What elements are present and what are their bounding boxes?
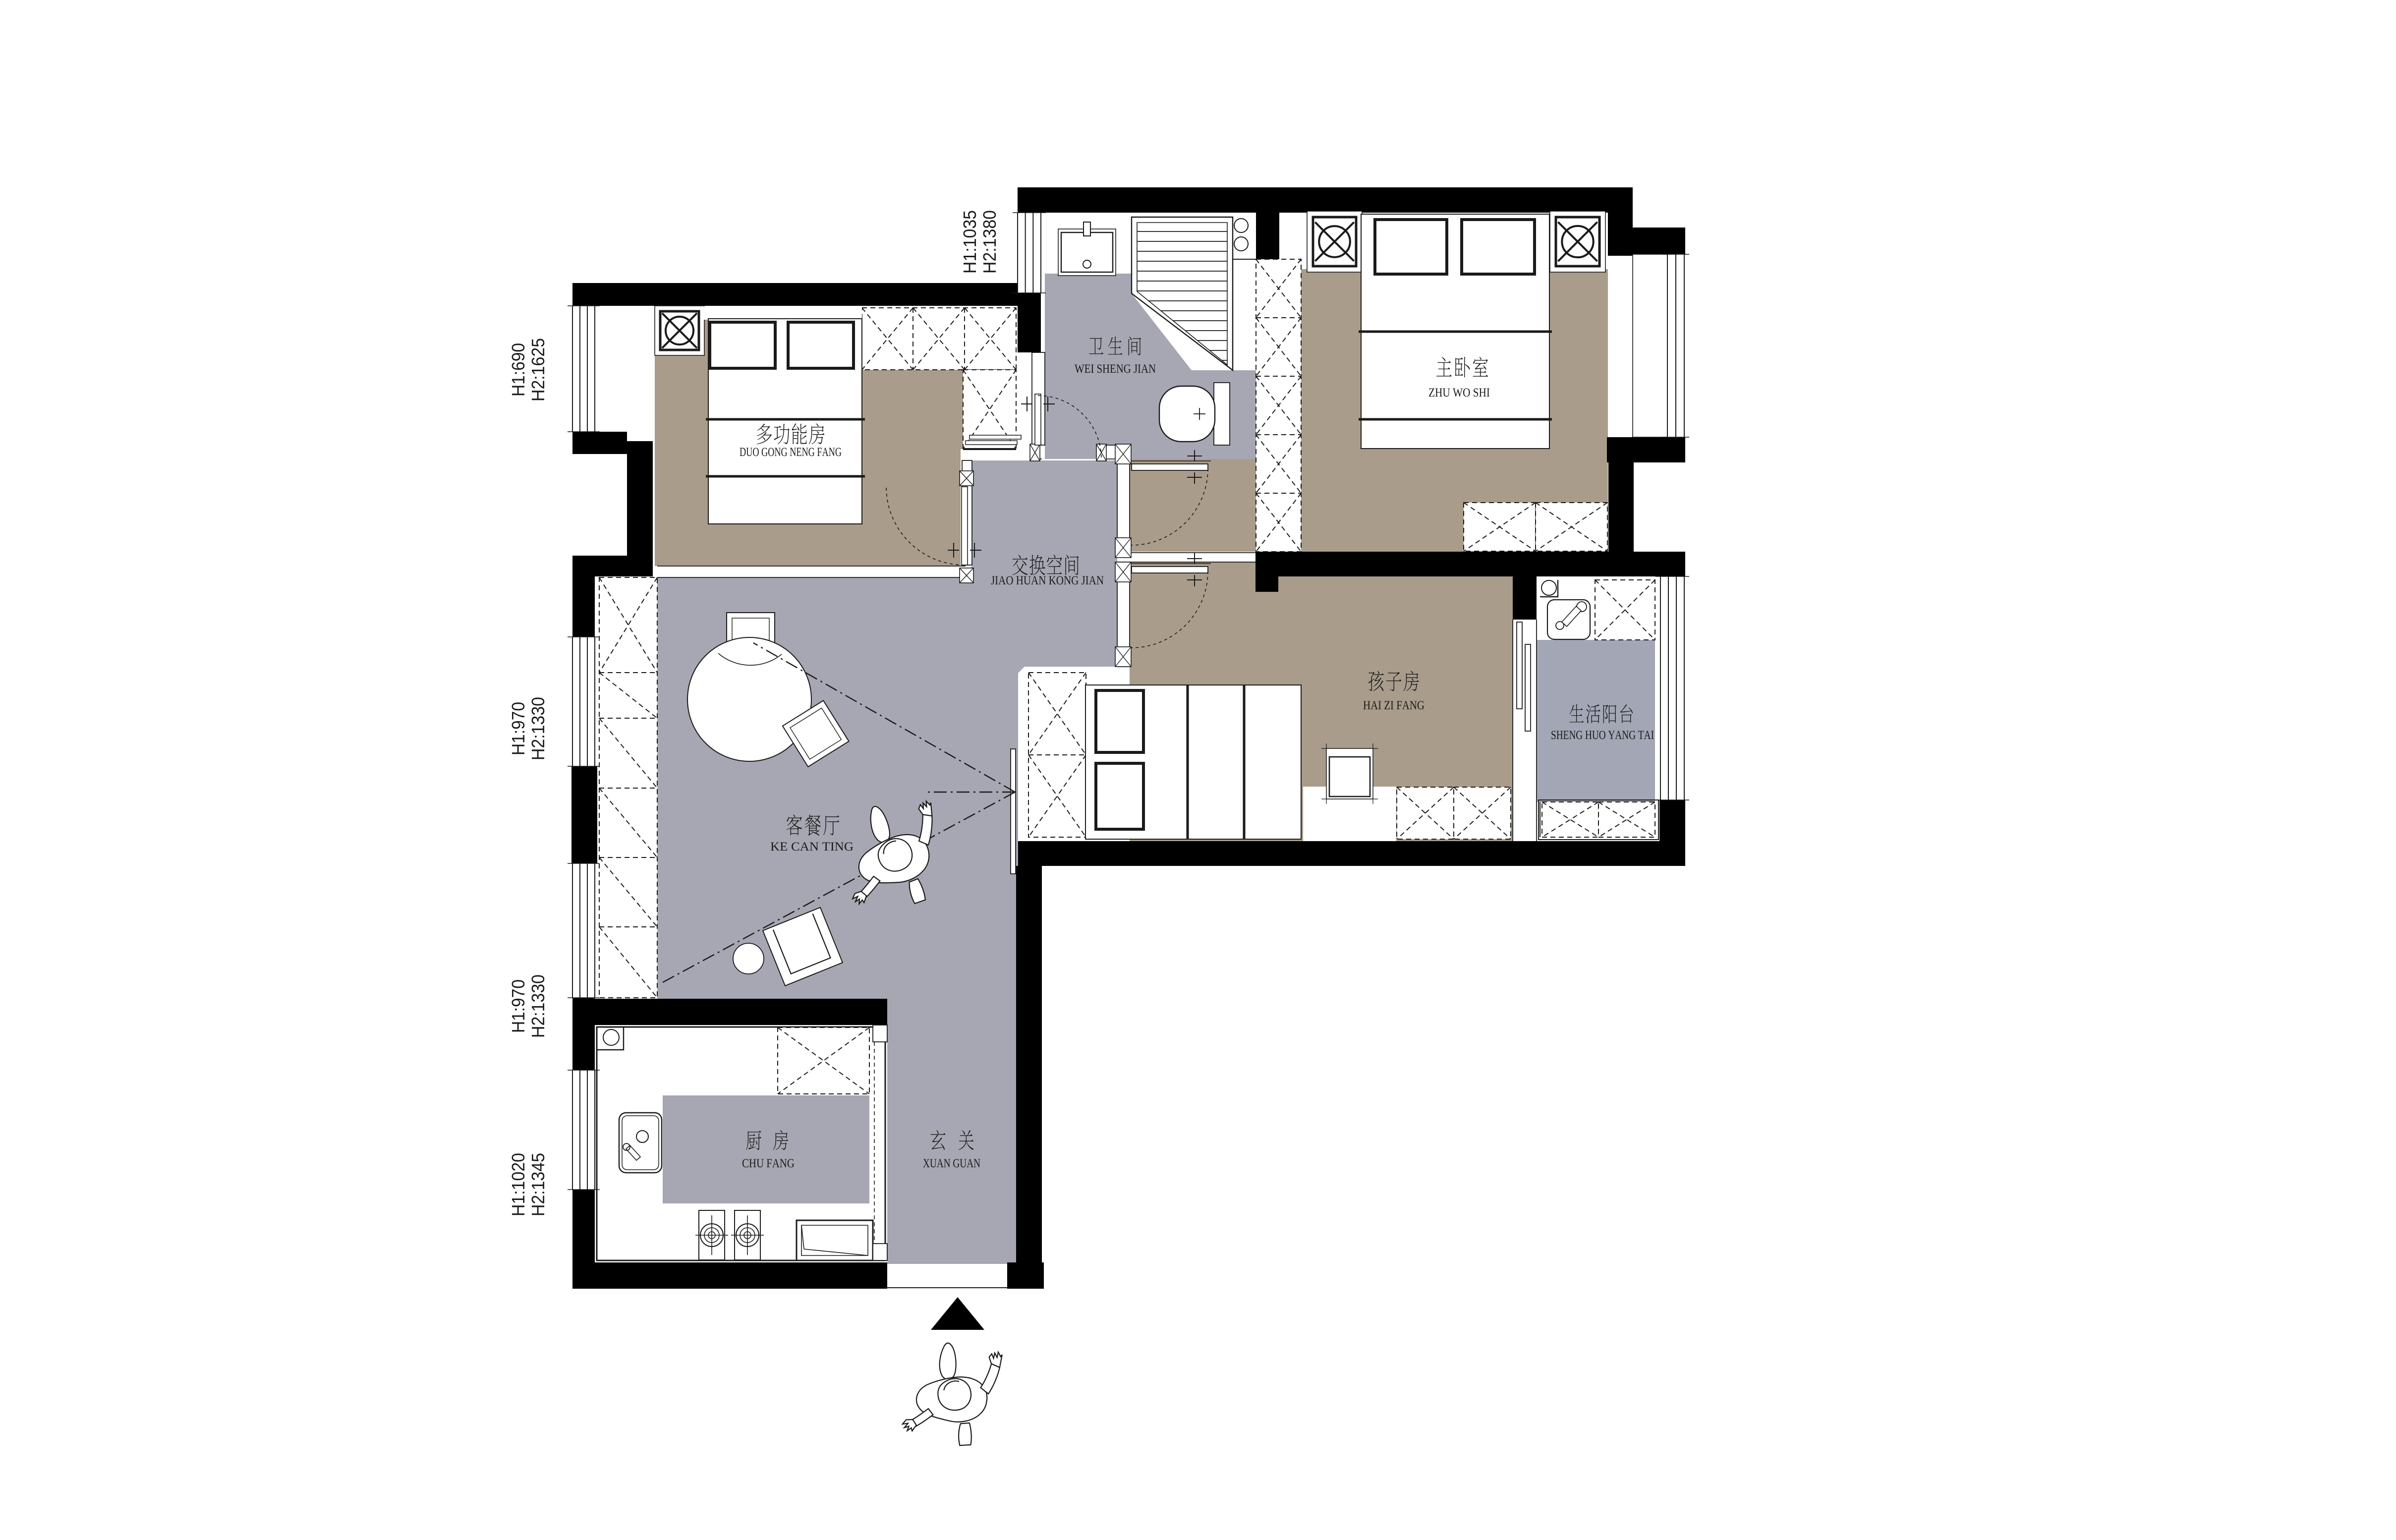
svg-text:H1:690: H1:690 [508, 343, 528, 397]
svg-text:H1:970: H1:970 [508, 702, 528, 755]
svg-text:JIAO HUAN KONG JIAN: JIAO HUAN KONG JIAN [991, 574, 1104, 587]
svg-text:H2:1625: H2:1625 [528, 338, 548, 401]
svg-text:HAI ZI FANG: HAI ZI FANG [1363, 699, 1425, 712]
svg-text:KE CAN TING: KE CAN TING [770, 840, 854, 854]
svg-text:CHU FANG: CHU FANG [742, 1157, 795, 1170]
svg-text:H2:1345: H2:1345 [528, 1153, 548, 1216]
svg-text:H1:1035: H1:1035 [960, 210, 980, 274]
svg-text:DUO GONG NENG FANG: DUO GONG NENG FANG [740, 446, 842, 459]
svg-text:H1:970: H1:970 [508, 979, 528, 1033]
svg-text:SHENG HUO YANG TAI: SHENG HUO YANG TAI [1551, 729, 1654, 742]
svg-text:H1:1020: H1:1020 [508, 1153, 528, 1216]
svg-text:H2:1380: H2:1380 [979, 210, 1000, 274]
svg-text:H2:1330: H2:1330 [528, 974, 548, 1038]
svg-text:ZHU WO SHI: ZHU WO SHI [1428, 386, 1490, 399]
svg-text:H2:1330: H2:1330 [528, 697, 548, 760]
svg-text:XUAN GUAN: XUAN GUAN [923, 1157, 980, 1170]
svg-text:WEI SHENG JIAN: WEI SHENG JIAN [1075, 362, 1156, 376]
